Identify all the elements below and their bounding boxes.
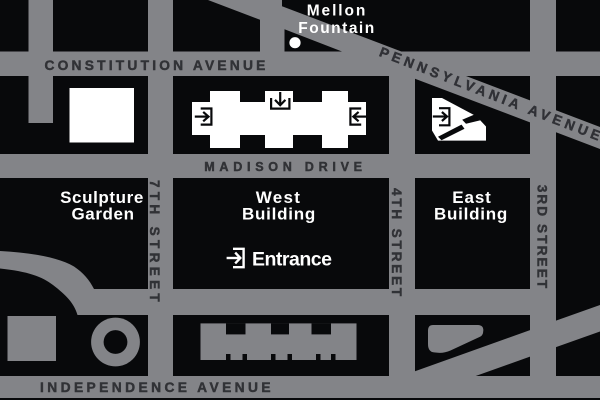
- svg-text:Garden: Garden: [71, 205, 134, 224]
- svg-text:INDEPENDENCE AVENUE: INDEPENDENCE AVENUE: [40, 380, 274, 395]
- svg-text:Entrance: Entrance: [252, 249, 332, 271]
- svg-text:CONSTITUTION AVENUE: CONSTITUTION AVENUE: [44, 58, 268, 73]
- svg-text:Building: Building: [434, 205, 508, 224]
- svg-text:3RD STREET: 3RD STREET: [535, 185, 550, 291]
- svg-text:Fountain: Fountain: [298, 20, 375, 37]
- svg-text:Mellon: Mellon: [307, 3, 367, 20]
- svg-text:MADISON DRIVE: MADISON DRIVE: [204, 160, 367, 174]
- svg-text:4TH STREET: 4TH STREET: [389, 188, 404, 299]
- svg-text:7TH STREET: 7TH STREET: [147, 180, 162, 306]
- svg-text:Building: Building: [242, 205, 316, 224]
